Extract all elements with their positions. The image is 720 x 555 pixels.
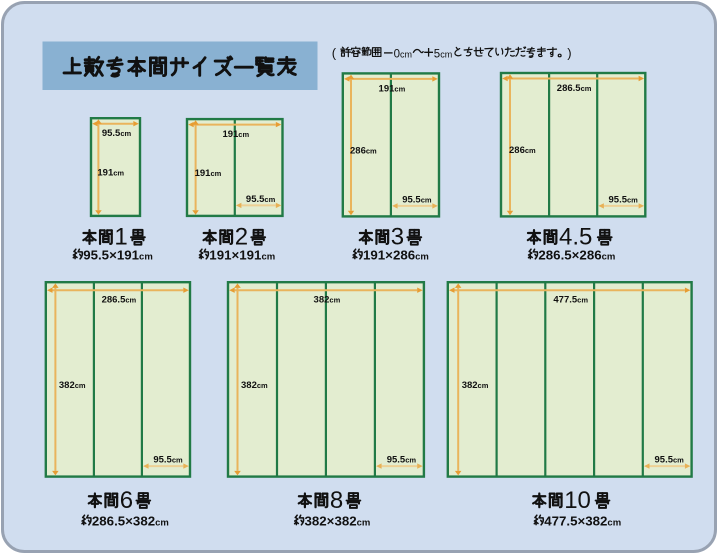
svg-text:95.5cm: 95.5cm [609,194,639,205]
svg-text:6: 6 [120,487,133,514]
svg-text:10: 10 [564,487,591,514]
svg-text:2: 2 [235,224,248,251]
svg-text:95.5cm: 95.5cm [402,194,432,205]
svg-text:0cm: 0cm [394,49,412,61]
svg-text:95.5cm: 95.5cm [387,455,417,466]
svg-text:382cm: 382cm [314,295,341,306]
svg-text:382cm: 382cm [241,380,268,391]
svg-text:286cm: 286cm [509,145,536,156]
svg-text:): ) [567,46,571,61]
svg-text:191cm: 191cm [195,168,222,179]
svg-text:8: 8 [330,487,343,514]
svg-text:382cm: 382cm [462,380,489,391]
svg-text:4.5: 4.5 [559,224,592,251]
svg-text:382cm: 382cm [59,380,86,391]
svg-text:191cm: 191cm [379,83,406,94]
svg-text:95.5cm: 95.5cm [655,455,685,466]
svg-text:(: ( [332,46,337,61]
svg-text:286.5cm: 286.5cm [102,295,137,306]
svg-text:1: 1 [114,224,127,251]
svg-text:191cm: 191cm [97,168,124,179]
svg-text:3: 3 [391,224,404,251]
svg-text:286cm: 286cm [350,145,377,156]
svg-text:95.5cm: 95.5cm [153,455,183,466]
svg-text:286.5cm: 286.5cm [557,83,592,94]
svg-text:95.5cm: 95.5cm [246,194,276,205]
svg-text:191cm: 191cm [222,129,249,140]
svg-text:477.5cm: 477.5cm [553,295,588,306]
svg-text:95.5cm: 95.5cm [102,128,132,139]
svg-text:5cm: 5cm [434,49,452,61]
